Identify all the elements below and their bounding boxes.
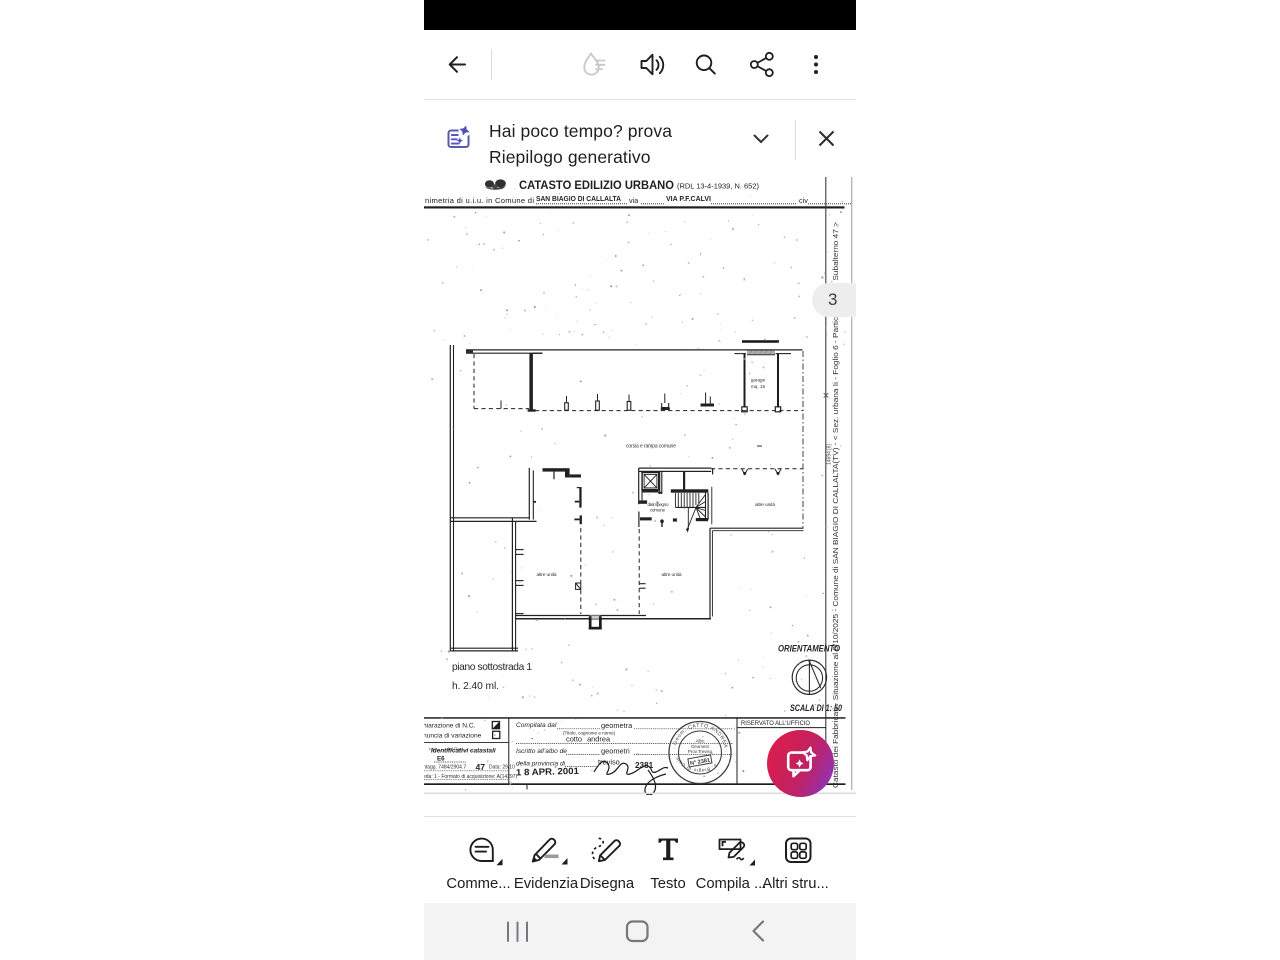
svg-text:Albo: Albo [696, 739, 705, 744]
svg-text:mq. 15: mq. 15 [751, 384, 765, 389]
svg-text:piano sottostrada 1: piano sottostrada 1 [452, 662, 532, 673]
svg-text:garage: garage [751, 378, 766, 383]
svg-text:VIA P.F.CALVI: VIA P.F.CALVI [666, 194, 711, 203]
svg-text:SAN BIAGIO DI CALLALTA: SAN BIAGIO DI CALLALTA [536, 194, 621, 203]
svg-text:geometri: geometri [601, 747, 630, 756]
svg-text:Compilata dal: Compilata dal [516, 722, 557, 729]
svg-text:Compila ...: Compila ... [696, 876, 767, 892]
svg-text:14694 [6]: 14694 [6] [827, 444, 833, 465]
svg-text:1 8 APR. 2001: 1 8 APR. 2001 [516, 766, 579, 778]
svg-text:RISERVATO ALL’UFFICIO: RISERVATO ALL’UFFICIO [741, 720, 810, 727]
svg-text:corsia e rampa comune: corsia e rampa comune [626, 444, 676, 450]
svg-text:CATASTO EDILIZIO URBANO: CATASTO EDILIZIO URBANO [519, 180, 674, 192]
svg-text:eda: 1 - Formato di acquisizio: eda: 1 - Formato di acquisizione: A(1429… [424, 774, 518, 780]
svg-text:Evidenzia: Evidenzia [514, 876, 579, 892]
svg-text:N° 2381: N° 2381 [690, 758, 711, 767]
svg-text:civ: civ [799, 196, 808, 205]
svg-text:-: - [531, 736, 534, 743]
svg-text:cotto andrea: cotto andrea [566, 734, 611, 743]
svg-text:Iscritto all’albo de: Iscritto all’albo de [516, 748, 567, 755]
svg-text:Testo: Testo [650, 876, 685, 892]
svg-text:SCALA DI 1: 50: SCALA DI 1: 50 [790, 703, 843, 713]
svg-text:geometra: geometra [601, 721, 633, 730]
svg-text:ntagg. 7484/2904.7: ntagg. 7484/2904.7 [424, 765, 466, 771]
svg-text:altre unità: altre unità [537, 572, 557, 578]
svg-text:comune: comune [650, 507, 665, 512]
svg-text:E6: E6 [437, 756, 445, 763]
svg-text:Data: 29/10: Data: 29/10 [489, 765, 515, 771]
svg-text:Identificativi catastali: Identificativi catastali [431, 748, 496, 755]
svg-text:nimetria di u.i.u. in Comu: nimetria di u.i.u. in Comune di [425, 196, 534, 205]
svg-text:hiarazione di N.C.: hiarazione di N.C. [424, 723, 476, 730]
svg-text:via: via [629, 196, 638, 205]
svg-text:altre unità: altre unità [755, 502, 775, 508]
svg-text:nuncia di variazione: nuncia di variazione [424, 732, 482, 739]
svg-text:(RDL 13-4-1939, N. 652): (RDL 13-4-1939, N. 652) [677, 182, 759, 191]
svg-text:ORIENTAMENTO: ORIENTAMENTO [778, 644, 840, 654]
svg-text:altre unità: altre unità [662, 572, 682, 578]
svg-text:h. 2.40 ml.: h. 2.40 ml. [452, 681, 499, 692]
svg-text:Comme...: Comme... [446, 876, 510, 892]
svg-text:Altri stru...: Altri stru... [762, 876, 829, 892]
svg-text:Prov.Treviso: Prov.Treviso [688, 749, 713, 754]
svg-text:Disegna: Disegna [580, 876, 635, 892]
svg-text:Geometri: Geometri [691, 744, 709, 749]
